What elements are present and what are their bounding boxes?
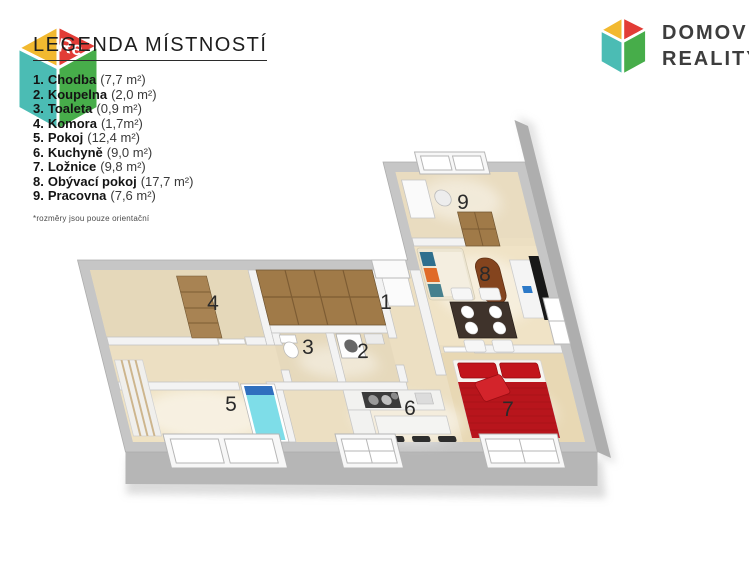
legend-item-6: 6.Kuchyně(9,0 m²) xyxy=(33,146,273,161)
legend-item-area: (7,7 m²) xyxy=(100,72,146,87)
bar-stool xyxy=(411,436,430,442)
dining-chair xyxy=(478,288,501,300)
dining-chair xyxy=(463,340,486,352)
legend-item-name: Komora xyxy=(48,116,97,131)
legend-item-number: 3. xyxy=(33,101,44,116)
room-label-6: 6 xyxy=(404,397,416,420)
legend: LEGENDA MÍSTNOSTÍ 1.Chodba(7,7 m²) 2.Kou… xyxy=(33,34,273,223)
legend-item-3: 3.Toaleta(0,9 m²) xyxy=(33,102,273,117)
bed-pillow xyxy=(499,363,541,378)
pokoj-window xyxy=(163,434,287,468)
legend-item-area: (1,7m²) xyxy=(101,116,143,131)
kitchen-window xyxy=(335,434,403,468)
brand-cube-icon xyxy=(598,16,652,76)
legend-item-number: 1. xyxy=(33,72,44,87)
sink xyxy=(415,393,434,404)
legend-item-name: Toaleta xyxy=(48,101,93,116)
legend-item-number: 7. xyxy=(33,159,44,174)
brand-name: DOMOV REALITY xyxy=(662,20,749,72)
legend-item-area: (9,0 m²) xyxy=(107,145,153,160)
room-label-4: 4 xyxy=(207,292,219,315)
legend-item-name: Ložnice xyxy=(48,159,96,174)
room-label-1: 1 xyxy=(380,291,392,314)
legend-item-name: Pracovna xyxy=(48,188,107,203)
legend-item-number: 6. xyxy=(33,145,44,160)
bar-stool xyxy=(437,436,456,442)
legend-title: LEGENDA MÍSTNOSTÍ xyxy=(33,34,267,61)
legend-item-number: 2. xyxy=(33,87,44,102)
blue-decor xyxy=(522,286,533,293)
legend-item-area: (17,7 m²) xyxy=(141,174,194,189)
room-label-3: 3 xyxy=(302,336,314,359)
legend-item-number: 5. xyxy=(33,130,44,145)
floorplan-page: { "legend": { "title": "LEGENDA MÍSTNOST… xyxy=(0,0,749,562)
legend-item-number: 9. xyxy=(33,188,44,203)
legend-item-number: 8. xyxy=(33,174,44,189)
room-label-5: 5 xyxy=(225,393,237,416)
room-label-7: 7 xyxy=(502,398,514,421)
brand-logo: DOMOV REALITY xyxy=(598,16,749,76)
legend-item-2: 2.Koupelna(2,0 m²) xyxy=(33,88,273,103)
room-label-9: 9 xyxy=(457,191,469,214)
legend-item-1: 1.Chodba(7,7 m²) xyxy=(33,73,273,88)
legend-item-7: 7.Ložnice(9,8 m²) xyxy=(33,160,273,175)
legend-item-number: 4. xyxy=(33,116,44,131)
brand-line-1: DOMOV xyxy=(662,20,749,46)
dining-chair xyxy=(491,340,514,352)
room-label-2: 2 xyxy=(357,340,369,363)
legend-item-area: (2,0 m²) xyxy=(111,87,157,102)
legend-item-name: Pokoj xyxy=(48,130,83,145)
legend-item-area: (0,9 m²) xyxy=(96,101,142,116)
dining-chair xyxy=(450,288,473,300)
legend-item-area: (9,8 m²) xyxy=(100,159,146,174)
brand-line-2: REALITY xyxy=(662,46,749,72)
office-window xyxy=(414,152,489,174)
dining-table xyxy=(450,302,517,338)
legend-item-name: Obývací pokoj xyxy=(48,174,137,189)
legend-item-area: (12,4 m²) xyxy=(87,130,140,145)
entrance-door xyxy=(371,260,409,278)
legend-item-5: 5.Pokoj(12,4 m²) xyxy=(33,131,273,146)
legend-footnote: *rozměry jsou pouze orientační xyxy=(33,214,273,223)
legend-item-name: Kuchyně xyxy=(48,145,103,160)
bed-pillow xyxy=(457,363,499,378)
wardrobe-hall xyxy=(256,270,386,325)
legend-item-name: Chodba xyxy=(48,72,96,87)
room-label-8: 8 xyxy=(479,263,491,286)
legend-item-9: 9.Pracovna(7,6 m²) xyxy=(33,189,273,204)
legend-item-area: (7,6 m²) xyxy=(110,188,156,203)
legend-item-8: 8.Obývací pokoj(17,7 m²) xyxy=(33,175,273,190)
legend-item-4: 4.Komora(1,7m²) xyxy=(33,117,273,132)
legend-item-name: Koupelna xyxy=(48,87,107,102)
bedroom-window xyxy=(479,434,565,468)
